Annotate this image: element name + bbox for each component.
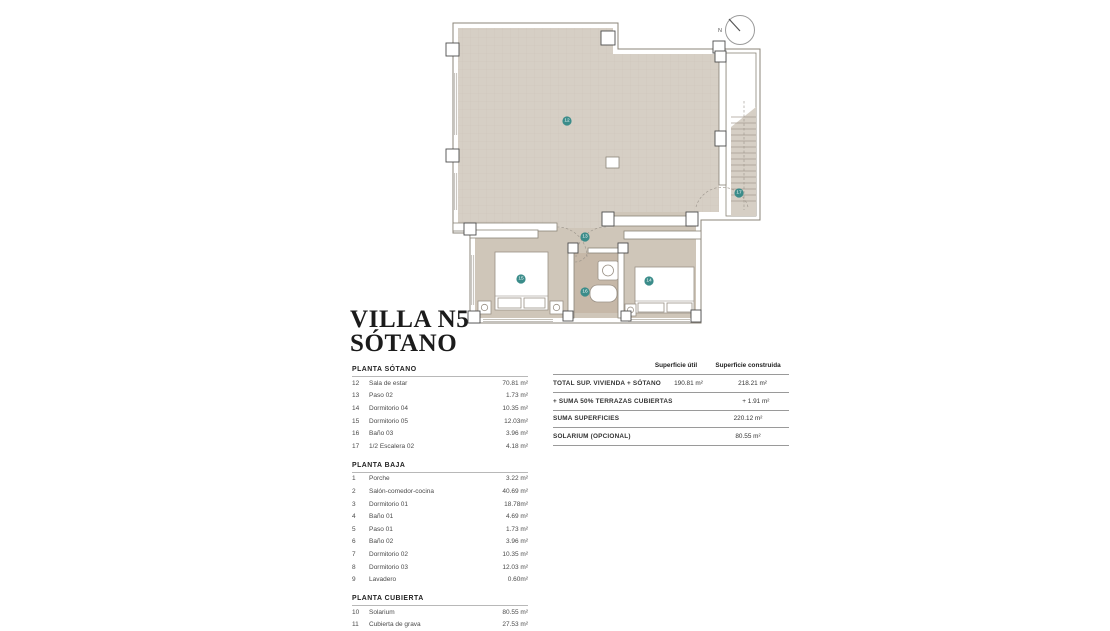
- legend-row: 13Paso 021.73 m²: [352, 390, 528, 403]
- title-line-2: SÓTANO: [350, 332, 469, 356]
- room-name: Porche: [369, 475, 506, 482]
- floor-grid-texture: [458, 28, 613, 228]
- room-badge-number: 17: [736, 190, 742, 196]
- section-header: PLANTA SÓTANO: [352, 363, 528, 377]
- legend-row: 16Baño 033.96 m²: [352, 427, 528, 440]
- room-number: 14: [352, 405, 369, 412]
- legend-row: 14Dormitorio 0410.35 m²: [352, 402, 528, 415]
- legend-row: 12Sala de estar70.81 m²: [352, 377, 528, 390]
- legend-row: 171/2 Escalera 024.18 m²: [352, 440, 528, 453]
- legend-row: 10Solarium80.55 m²: [352, 606, 528, 619]
- room-badge: 16: [580, 287, 589, 296]
- room-area: 4.18 m²: [506, 443, 528, 450]
- legend-row: 15Dormitorio 0512.03m²: [352, 415, 528, 428]
- room-name: Salón-comedor-cocina: [369, 488, 502, 495]
- room-badge: 12: [562, 116, 571, 125]
- summary-table: Superficie útil Superficie construida TO…: [553, 357, 789, 446]
- room-number: 13: [352, 392, 369, 399]
- page-title: VILLA N5 SÓTANO: [350, 308, 469, 356]
- room-area: 1.73 m²: [506, 392, 528, 399]
- room-badge-number: 12: [564, 118, 570, 124]
- summary-row-label: + SUMA 50% TERRAZAS CUBIERTAS: [553, 398, 673, 405]
- room-number: 4: [352, 513, 369, 520]
- room-area: 80.55 m²: [502, 609, 528, 616]
- room-area: 1.73 m²: [506, 526, 528, 533]
- room-number: 12: [352, 380, 369, 387]
- summary-header-util: Superficie útil: [645, 362, 707, 369]
- room-name: Paso 01: [369, 526, 506, 533]
- title-line-1: VILLA N5: [350, 308, 469, 332]
- room-area: 10.35 m²: [502, 551, 528, 558]
- room-badge-number: 13: [582, 234, 588, 240]
- legend: PLANTA SÓTANO12Sala de estar70.81 m²13Pa…: [352, 363, 528, 631]
- summary-header-construida: Superficie construida: [707, 362, 789, 369]
- room-area: 70.81 m²: [502, 380, 528, 387]
- room-number: 6: [352, 538, 369, 545]
- legend-row: 3Dormitorio 0118.78m²: [352, 498, 528, 511]
- legend-row: 7Dormitorio 0210.35 m²: [352, 548, 528, 561]
- room-name: Lavadero: [369, 576, 508, 583]
- room-name: Dormitorio 04: [369, 405, 502, 412]
- room-number: 15: [352, 418, 369, 425]
- summary-row: SOLARIUM (OPCIONAL)80.55 m²: [553, 428, 789, 446]
- legend-row: 1Porche3.22 m²: [352, 473, 528, 486]
- room-name: Sala de estar: [369, 380, 502, 387]
- summary-row-label: SOLARIUM (OPCIONAL): [553, 433, 645, 440]
- section-header: PLANTA BAJA: [352, 459, 528, 473]
- room-name: Baño 03: [369, 430, 506, 437]
- summary-row: + SUMA 50% TERRAZAS CUBIERTAS+ 1.91 m²: [553, 393, 789, 411]
- room-number: 5: [352, 526, 369, 533]
- room-badge: 13: [580, 232, 589, 241]
- room-name: Solarium: [369, 609, 502, 616]
- north-compass: N: [718, 16, 755, 45]
- room-number: 1: [352, 475, 369, 482]
- summary-row: SUMA SUPERFICIES220.12 m²: [553, 411, 789, 429]
- legend-row: 5Paso 011.73 m²: [352, 523, 528, 536]
- room-badge-number: 16: [582, 289, 588, 295]
- room-area: 12.03 m²: [502, 564, 528, 571]
- room-number: 10: [352, 609, 369, 616]
- room-name: Dormitorio 01: [369, 501, 504, 508]
- room-area: 18.78m²: [504, 501, 528, 508]
- floor-plan: N 121314151617: [438, 5, 778, 345]
- room-badge-number: 14: [646, 278, 652, 284]
- column-box: [606, 157, 619, 168]
- summary-table-header: Superficie útil Superficie construida: [553, 357, 789, 375]
- north-label: N: [718, 28, 722, 34]
- room-number: 11: [352, 621, 369, 628]
- room-badge: 14: [644, 276, 653, 285]
- legend-row: 6Baño 023.96 m²: [352, 536, 528, 549]
- room-area: 40.69 m²: [502, 488, 528, 495]
- room-area: 3.96 m²: [506, 538, 528, 545]
- summary-row-label: TOTAL SUP. VIVIENDA + SÓTANO: [553, 380, 661, 387]
- room-name: Dormitorio 02: [369, 551, 502, 558]
- legend-row: 8Dormitorio 0312.03 m²: [352, 561, 528, 574]
- room-number: 9: [352, 576, 369, 583]
- room-name: Dormitorio 05: [369, 418, 504, 425]
- legend-row: 11Cubierta de grava27.53 m²: [352, 619, 528, 631]
- room-area: 0.60m²: [508, 576, 528, 583]
- room-area: 3.22 m²: [506, 475, 528, 482]
- room-number: 8: [352, 564, 369, 571]
- room-area: 3.96 m²: [506, 430, 528, 437]
- room-badge: 17: [734, 188, 743, 197]
- room-name: Dormitorio 03: [369, 564, 502, 571]
- room-name: Baño 02: [369, 538, 506, 545]
- section-header: PLANTA CUBIERTA: [352, 592, 528, 606]
- summary-util-value: 190.81 m²: [661, 380, 716, 387]
- summary-row: TOTAL SUP. VIVIENDA + SÓTANO190.81 m²218…: [553, 375, 789, 393]
- summary-construida-value: + 1.91 m²: [723, 398, 789, 405]
- room-name: Paso 02: [369, 392, 506, 399]
- room-number: 17: [352, 443, 369, 450]
- summary-construida-value: 220.12 m²: [707, 415, 789, 422]
- room-badge-number: 15: [518, 276, 524, 282]
- room-area: 10.35 m²: [502, 405, 528, 412]
- summary-construida-value: 80.55 m²: [707, 433, 789, 440]
- legend-row: 2Salón-comedor-cocina40.69 m²: [352, 485, 528, 498]
- room-number: 2: [352, 488, 369, 495]
- room-area: 27.53 m²: [502, 621, 528, 628]
- room-number: 7: [352, 551, 369, 558]
- room-badge: 15: [516, 274, 525, 283]
- room-area: 12.03m²: [504, 418, 528, 425]
- room-name: Baño 01: [369, 513, 506, 520]
- bed-dormitorio-04: [625, 267, 694, 316]
- room-number: 16: [352, 430, 369, 437]
- room-name: 1/2 Escalera 02: [369, 443, 506, 450]
- room-number: 3: [352, 501, 369, 508]
- room-area: 4.69 m²: [506, 513, 528, 520]
- legend-row: 9Lavadero0.60m²: [352, 573, 528, 586]
- legend-row: 4Baño 014.69 m²: [352, 510, 528, 523]
- room-name: Cubierta de grava: [369, 621, 502, 628]
- summary-construida-value: 218.21 m²: [716, 380, 789, 387]
- summary-row-label: SUMA SUPERFICIES: [553, 415, 645, 422]
- floor-grid-texture: [613, 54, 719, 212]
